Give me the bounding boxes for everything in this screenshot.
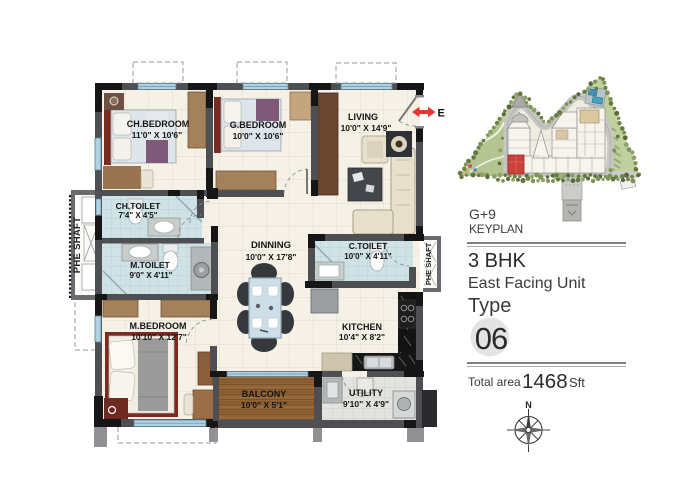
svg-text:East Facing Unit: East Facing Unit	[468, 275, 586, 292]
svg-text:M.TOILET: M.TOILET	[130, 260, 170, 270]
svg-text:Sft: Sft	[569, 375, 585, 390]
svg-text:KITCHEN: KITCHEN	[342, 322, 382, 332]
svg-text:10'0" X 14'9": 10'0" X 14'9"	[341, 123, 392, 133]
svg-text:LIVING: LIVING	[348, 112, 378, 122]
svg-text:9'10" X 4'9": 9'10" X 4'9"	[343, 399, 389, 409]
svg-text:10'4" X 8'2": 10'4" X 8'2"	[339, 332, 385, 342]
svg-text:10'0" X 4'11": 10'0" X 4'11"	[344, 252, 392, 261]
svg-text:G+9: G+9	[469, 206, 496, 222]
svg-text:7'4" X 4'5": 7'4" X 4'5"	[119, 211, 158, 220]
svg-text:E: E	[438, 108, 445, 120]
svg-text:BALCONY: BALCONY	[242, 389, 287, 399]
svg-text:G.BEDROOM: G.BEDROOM	[230, 120, 287, 130]
svg-text:DINNING: DINNING	[251, 240, 291, 251]
svg-text:10'0" X 17'8": 10'0" X 17'8"	[246, 252, 297, 262]
svg-text:PHE SHAFT: PHE SHAFT	[424, 242, 433, 285]
svg-text:Type: Type	[468, 295, 511, 317]
svg-text:N: N	[525, 400, 532, 410]
svg-text:06: 06	[475, 321, 507, 356]
svg-text:PHE SHAFT: PHE SHAFT	[72, 217, 83, 274]
svg-text:Total area: Total area	[468, 375, 521, 389]
svg-text:1468: 1468	[522, 370, 568, 393]
svg-text:10'0" X 10'6": 10'0" X 10'6"	[233, 131, 284, 141]
svg-text:M.BEDROOM: M.BEDROOM	[130, 321, 187, 331]
svg-text:11'0" X 10'6": 11'0" X 10'6"	[132, 130, 182, 140]
svg-text:KEYPLAN: KEYPLAN	[469, 222, 523, 236]
svg-text:C.TOILET: C.TOILET	[349, 241, 388, 251]
svg-text:9'0" X 4'11": 9'0" X 4'11"	[130, 271, 173, 280]
svg-text:CH.TOILET: CH.TOILET	[116, 201, 162, 211]
svg-text:CH.BEDROOM: CH.BEDROOM	[127, 119, 190, 129]
svg-text:UTILITY: UTILITY	[349, 388, 383, 398]
svg-text:3 BHK: 3 BHK	[468, 250, 526, 272]
svg-text:10'0" X 5'1": 10'0" X 5'1"	[241, 400, 287, 410]
svg-text:10'10" X 12'7": 10'10" X 12'7"	[131, 332, 187, 342]
